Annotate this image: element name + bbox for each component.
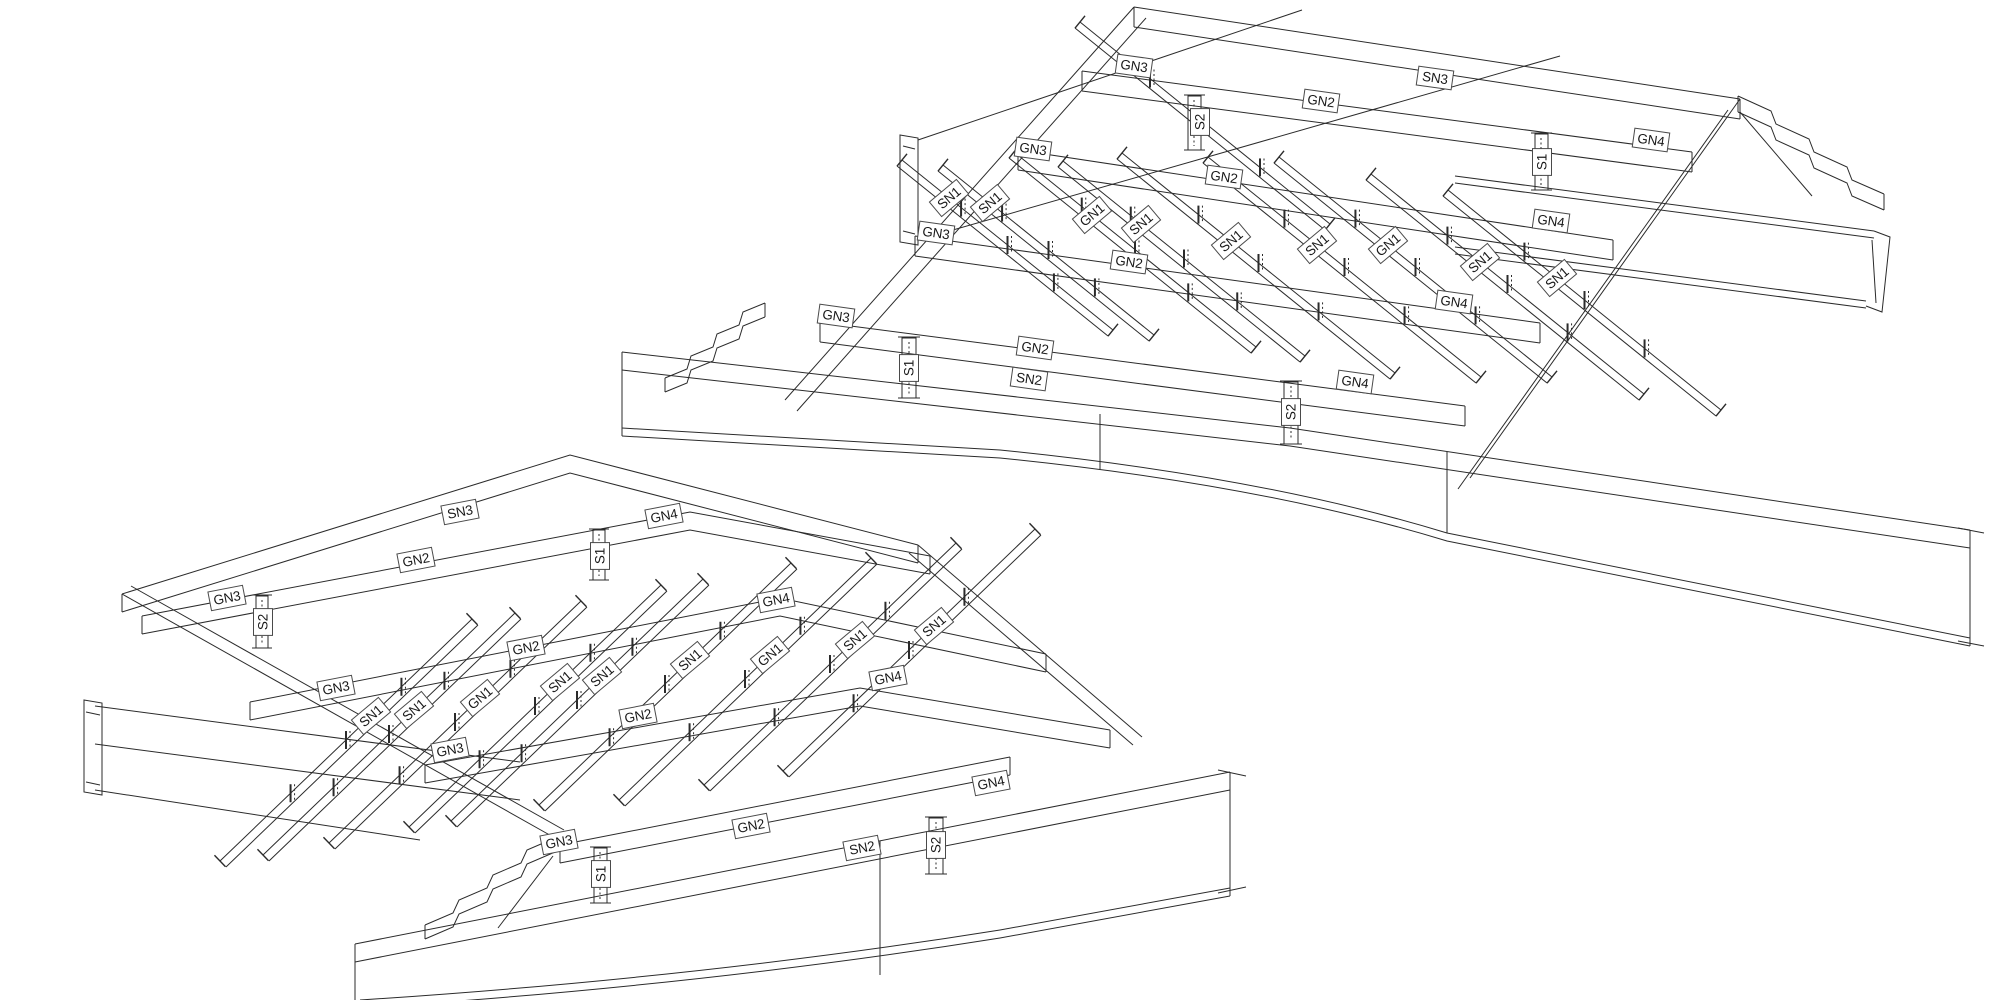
girder-line	[425, 838, 555, 925]
member-label-s1: S1	[592, 861, 611, 888]
member-label-gn3: GN3	[817, 304, 855, 328]
member-label-gn2: GN2	[507, 635, 545, 660]
member-label-text: S2	[1193, 114, 1208, 130]
member-label-text: S1	[1535, 154, 1550, 170]
member-label-gn2: GN2	[1016, 336, 1054, 360]
cross-beam-end-plate	[1117, 147, 1127, 159]
cross-beam-rail	[1443, 196, 1716, 416]
cross-beam-rail	[269, 619, 521, 861]
girder-line	[918, 10, 1302, 140]
girder-line	[622, 352, 1970, 530]
cross-beam-end-plate	[1149, 329, 1159, 341]
joist-top-line	[250, 598, 1046, 702]
member-label-s2: S2	[1191, 109, 1210, 136]
deck-edge-line	[909, 553, 1133, 745]
cross-beam-rail	[1274, 163, 1547, 383]
girder-line	[903, 231, 915, 234]
joist-top-line	[1082, 71, 1692, 152]
member-label-sn2: SN2	[843, 835, 881, 860]
member-label-gn4: GN4	[1532, 209, 1570, 233]
girder-line	[1455, 176, 1874, 231]
member-label-text: S2	[1284, 404, 1299, 420]
member-label-s1: S1	[1533, 149, 1552, 176]
member-label-gn4: GN4	[869, 665, 907, 690]
member-label-s1: S1	[900, 355, 919, 382]
girder-line	[86, 782, 100, 785]
member-label-gn3: GN3	[317, 675, 355, 700]
girder-line	[1866, 231, 1890, 312]
member-label-gn4: GN4	[1632, 128, 1670, 152]
girder-line	[1872, 240, 1876, 303]
member-label-sn1: SN1	[1121, 205, 1160, 242]
girder-line	[622, 370, 1970, 548]
cross-beam-end-plate	[938, 159, 948, 171]
member-label-gn3: GN3	[208, 585, 246, 610]
cross-beam-end-plate	[1547, 371, 1557, 383]
member-label-sn1: SN1	[970, 184, 1009, 221]
cross-beam-rail	[335, 607, 587, 849]
cross-beam-end-plate	[1390, 367, 1400, 379]
cross-beam-rail	[1366, 180, 1639, 400]
cross-beam-end-plate	[1366, 168, 1376, 180]
cross-beam-end-plate	[1274, 151, 1284, 163]
girder-line	[1738, 96, 1884, 194]
girder-line	[1958, 528, 1984, 533]
deck-edge-line	[1458, 110, 1728, 489]
cross-beam-end-plate	[1716, 404, 1726, 416]
cross-beam-rail	[625, 564, 877, 806]
girder-line	[1455, 254, 1866, 308]
joist-top-line	[122, 455, 918, 594]
member-label-sn1: SN1	[929, 179, 968, 216]
cross-beam-rail	[710, 549, 962, 791]
member-label-gn1: GN1	[1072, 196, 1111, 233]
member-label-text: S2	[929, 837, 944, 853]
cross-beam-end-plate	[897, 154, 907, 166]
member-label-gn3: GN3	[917, 221, 955, 245]
member-label-gn3: GN3	[1115, 54, 1153, 78]
member-label-sn1: SN1	[1297, 226, 1336, 263]
girder-line	[355, 790, 1230, 962]
member-label-gn2: GN2	[1205, 165, 1243, 189]
member-label-sn3: SN3	[1416, 66, 1454, 90]
deck-edge-line	[1470, 99, 1740, 478]
girder-line	[95, 790, 420, 840]
member-label-text: S1	[902, 360, 917, 376]
cross-beam-rail	[457, 585, 709, 827]
member-label-gn4: GN4	[645, 503, 683, 528]
member-label-text: S2	[256, 614, 271, 630]
girder-line	[86, 712, 100, 715]
cross-beam-end-plate	[1300, 350, 1310, 362]
cross-beam-end-plate	[1075, 16, 1085, 28]
cross-beam-rail	[1058, 167, 1300, 362]
member-label-gn3: GN3	[431, 737, 469, 762]
joist-bottom-line	[425, 706, 1110, 783]
girder-line	[1958, 641, 1984, 646]
member-label-gn2: GN2	[1302, 89, 1340, 113]
member-label-s1: S1	[591, 543, 610, 570]
member-label-text: S1	[593, 548, 608, 564]
cross-beam-end-plate	[1443, 184, 1453, 196]
member-label-sn1: SN1	[1537, 259, 1576, 296]
lower-grillage-structure: SN3GN4GN2GN3GN4GN2GN3GN4GN2GN3GN4GN2GN3S…	[84, 455, 1246, 1000]
member-label-gn2: GN2	[397, 547, 435, 572]
girder-line	[355, 772, 1230, 944]
girder-line	[1218, 770, 1246, 776]
member-label-sn3: SN3	[441, 499, 479, 524]
deck-edge-line	[131, 586, 564, 830]
girder-line	[1740, 112, 1812, 196]
member-label-gn4: GN4	[1435, 290, 1473, 314]
member-label-s2: S2	[1282, 399, 1301, 426]
member-label-sn1: SN1	[1211, 222, 1250, 259]
cross-beam-rail	[1203, 163, 1476, 383]
girder-line	[1455, 183, 1874, 238]
girder-line	[903, 146, 915, 149]
deck-edge-line	[918, 545, 1142, 737]
member-label-gn4: GN4	[972, 770, 1010, 795]
joist-bottom-line	[1082, 91, 1692, 172]
member-label-s2: S2	[254, 609, 273, 636]
girder-line	[900, 135, 918, 245]
cross-beam-rail	[1117, 159, 1390, 379]
member-label-text: S1	[594, 866, 609, 882]
joist-top-line	[425, 688, 1110, 765]
member-label-gn4: GN4	[757, 587, 795, 612]
steel-grillage-isometric-drawing: GN3GN2SN3GN4GN3GN2GN4GN3GN2GN4GN3GN2GN4S…	[0, 0, 2000, 1000]
girder-line	[1218, 887, 1246, 893]
girder-line	[360, 888, 1230, 1000]
member-label-s2: S2	[927, 832, 946, 859]
cross-beam-end-plate	[1476, 371, 1486, 383]
girder-line	[622, 428, 1970, 638]
deck-edge-line	[122, 594, 555, 838]
cross-beam-end-plate	[1108, 324, 1118, 336]
cross-beam-end-plate	[1251, 341, 1261, 353]
joist-top-line	[142, 512, 930, 616]
member-label-gn2: GN2	[1110, 250, 1148, 274]
upper-grillage-structure: GN3GN2SN3GN4GN3GN2GN4GN3GN2GN4GN3GN2GN4S…	[622, 7, 1984, 646]
cross-beam-end-plate	[1639, 388, 1649, 400]
girder-line	[84, 700, 102, 795]
drawing-canvas: GN3GN2SN3GN4GN3GN2GN4GN3GN2GN4GN3GN2GN4S…	[0, 0, 2000, 1000]
member-label-gn1: GN1	[1368, 226, 1407, 263]
girder-line	[1455, 247, 1866, 301]
member-label-gn2: GN2	[732, 813, 770, 838]
